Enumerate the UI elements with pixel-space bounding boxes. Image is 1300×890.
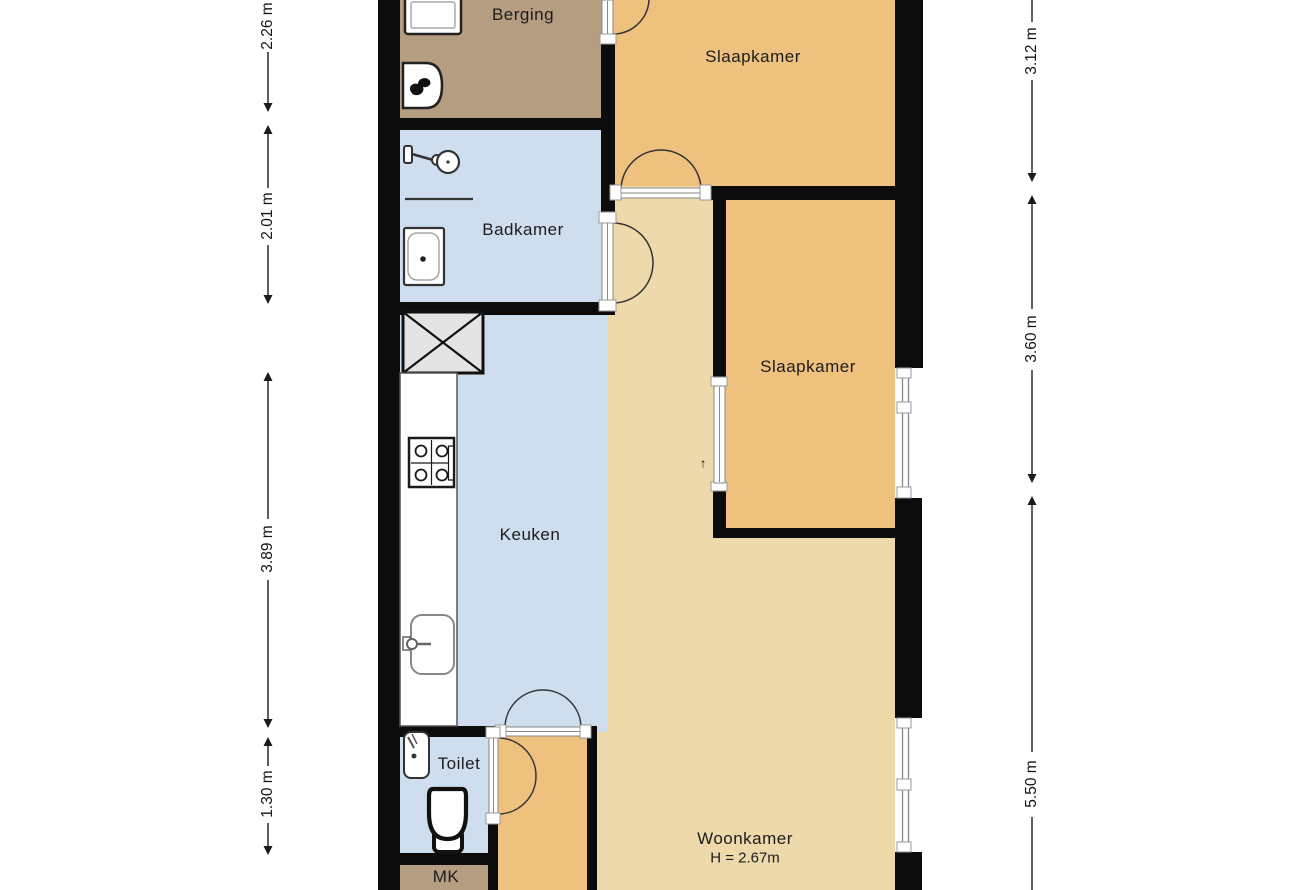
sliding-door-jamb bbox=[711, 377, 727, 386]
ceiling-height-note: H = 2.67m bbox=[710, 850, 780, 867]
room-label-berging: Berging bbox=[492, 5, 554, 25]
wall-outer-right-bottom bbox=[895, 852, 922, 890]
room-label-slaapkamer-mid: Slaapkamer bbox=[760, 357, 856, 377]
wall-toilet-bottom bbox=[400, 853, 498, 865]
door-jamb bbox=[599, 300, 616, 311]
dimension-label-left-3: 3.89 m bbox=[259, 523, 277, 574]
kitchen-sink-icon bbox=[403, 615, 454, 674]
door-jamb bbox=[486, 727, 500, 738]
toilet-bowl-icon bbox=[429, 789, 466, 852]
room-floor-slaapkamer-top bbox=[610, 0, 895, 186]
room-label-meterkast: MK bbox=[433, 867, 460, 887]
wall-outer-right-top bbox=[895, 0, 923, 368]
door-jamb bbox=[600, 34, 616, 44]
room-floor-entree-hall bbox=[498, 728, 588, 890]
window-woonkamer bbox=[895, 718, 922, 852]
window-jamb bbox=[897, 402, 911, 413]
wall-outer-right-mid bbox=[895, 498, 922, 718]
room-floor-woonkamer-edge bbox=[597, 728, 609, 890]
wall-slaapkamer-bottom bbox=[713, 528, 895, 538]
window-jamb bbox=[897, 779, 911, 790]
wall-meterkast-right bbox=[488, 865, 498, 890]
door-jamb bbox=[580, 725, 591, 738]
door-jamb bbox=[486, 813, 500, 824]
room-label-badkamer: Badkamer bbox=[482, 220, 563, 240]
wall-outer-left bbox=[378, 0, 400, 890]
room-label-toilet: Toilet bbox=[438, 754, 481, 774]
washbasin-icon bbox=[404, 228, 444, 285]
dimension-label-right-1: 3.12 m bbox=[1023, 25, 1041, 76]
window-jamb bbox=[897, 487, 911, 498]
dimension-label-left-2: 2.01 m bbox=[259, 190, 277, 241]
dimension-label-right-2: 3.60 m bbox=[1023, 313, 1041, 364]
window-jamb bbox=[897, 368, 911, 378]
sliding-door-direction-marker: ↑ bbox=[700, 456, 707, 471]
wall-berging-bottom bbox=[400, 118, 615, 130]
door-jamb bbox=[700, 185, 711, 200]
room-label-woonkamer: Woonkamer bbox=[697, 829, 793, 849]
floorplan-canvas: Berging Slaapkamer Badkamer Slaapkamer K… bbox=[0, 0, 1300, 890]
dimension-label-right-3: 5.50 m bbox=[1023, 758, 1041, 809]
wall-bedroom-divider-b bbox=[703, 186, 895, 200]
hand-basin-icon bbox=[404, 732, 429, 778]
door-jamb bbox=[610, 185, 621, 200]
ventilation-shaft-icon bbox=[403, 312, 483, 373]
window-slaapkamer-mid bbox=[895, 368, 923, 498]
floorplan-drawing bbox=[0, 0, 1300, 890]
door-jamb bbox=[599, 212, 616, 223]
wall-slaapkamer-left-a bbox=[713, 200, 726, 386]
wall-hall-right bbox=[587, 726, 597, 890]
window-jamb bbox=[897, 718, 911, 728]
washing-machine-icon bbox=[405, 0, 461, 34]
stove-icon bbox=[409, 438, 454, 487]
dimension-label-left-4: 1.30 m bbox=[259, 768, 277, 819]
room-label-keuken: Keuken bbox=[500, 525, 561, 545]
room-label-slaapkamer-top: Slaapkamer bbox=[705, 47, 801, 67]
dimension-label-left-1: 2.26 m bbox=[259, 0, 277, 51]
boiler-icon bbox=[403, 63, 442, 108]
window-jamb bbox=[897, 842, 911, 852]
